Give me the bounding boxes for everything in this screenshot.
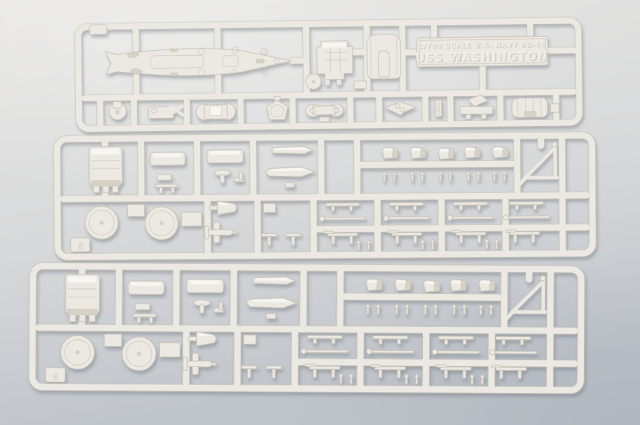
block-part [550, 103, 559, 112]
photo-model-kit-sprues: E E [0, 0, 640, 425]
nameplate-part: 1/700 SCALE U.S. NAVY BB-56 1/700 SCALE … [415, 36, 549, 67]
nameplate-line2: USS WASHINGTON [416, 50, 549, 65]
block-part [354, 81, 367, 89]
deckhouse-part [196, 103, 236, 120]
photo-canvas: E E [0, 0, 640, 425]
small-column-part [435, 100, 442, 116]
round-platform-part [306, 74, 322, 90]
sprue-letter-tab [90, 25, 107, 35]
